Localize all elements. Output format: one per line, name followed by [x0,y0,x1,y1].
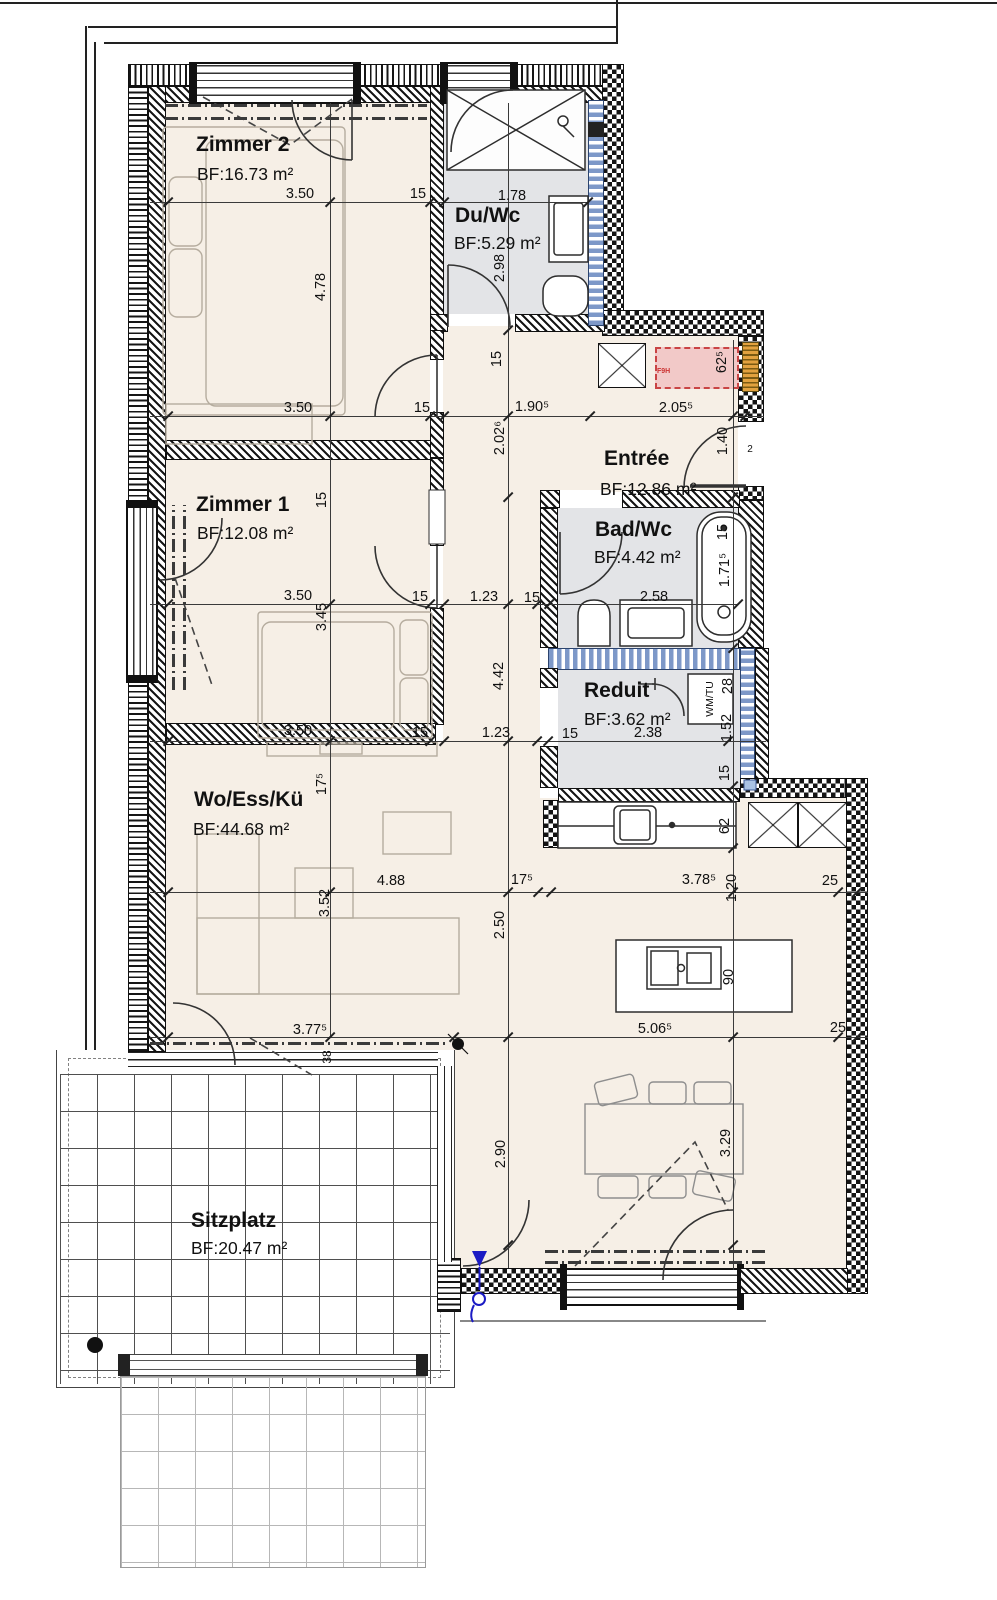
room-area-zimmer1: BF:12.08 m² [197,523,293,544]
dimension-label: 2.02⁶ [493,421,508,455]
toilet-icon [578,600,610,646]
dimension-line [508,103,509,1268]
curtain-line [165,104,427,107]
room-label-zimmer2: Zimmer 2 [196,133,289,157]
dimension-label: 15 [412,590,428,605]
dimension-label: 1.78 [498,189,526,204]
side-table-icon [383,812,451,854]
wardrobe-line [172,505,175,690]
washer-tag: WM/TU [705,681,716,717]
dimension-label: 2.38 [634,726,662,741]
dimension-label: 1.90⁵ [515,400,549,415]
door-arc [173,1003,235,1065]
floor-plan: Zimmer 2 BF:16.73 m² Du/Wc BF:5.29 m² En… [0,0,997,1600]
room-area-entree: BF:12.86 m² [600,479,696,500]
door-number-tag: 2 [747,445,753,455]
dimension-label: 62 [718,818,733,834]
room-area-zimmer2: BF:16.73 m² [197,164,293,185]
dimension-label: 17⁵ [511,873,533,888]
dimension-label: 15 [414,401,430,416]
dimension-label: 17⁵ [315,773,330,795]
dimension-label: 1.52 [720,714,735,742]
dimension-label: 25 [822,874,838,889]
dimension-label: 15 [524,591,540,606]
vanity-icon [620,600,692,646]
kitchen-island-icon [616,940,792,1012]
door-arc [663,1210,733,1280]
dimension-label: 3.50 [284,589,312,604]
room-area-duwc: BF:5.29 m² [454,233,541,254]
door-arcs [160,90,746,1280]
toilet-icon [543,276,588,316]
vent-marker [744,780,756,790]
room-label-sitzplatz: Sitzplatz [191,1209,276,1233]
dimension-label: 5.06⁵ [638,1022,672,1037]
room-area-wohnen: BF:44.68 m² [193,819,289,840]
curtain-line [165,117,427,120]
dimension-label: 3.52 [318,889,333,917]
dimension-label: 3.78⁵ [682,873,716,888]
dimension-label: 4.88 [377,874,405,889]
lintel-line [150,1042,445,1045]
dimension-label: 3.50 [284,401,312,416]
wall-recess [429,490,445,544]
dimension-label: 28 [721,678,736,694]
room-area-badwc: BF:4.42 m² [594,547,681,568]
dimension-label: 15 [490,351,505,367]
dimension-label: 3.50 [286,187,314,202]
room-label-entree: Entrée [604,447,669,471]
dimension-label: 15 [718,765,733,781]
room-label-zimmer1: Zimmer 1 [196,493,289,517]
dimension-label: 15 [412,726,428,741]
dimension-label: 38 [321,1050,333,1063]
dimension-label: 2.58 [640,590,668,605]
dimension-line [150,741,766,742]
symbols [87,780,756,1353]
dimension-label: 1.40 [716,427,731,455]
dimension-label: 3.45 [315,603,330,631]
dimension-label: 2.05⁵ [659,401,693,416]
room-label-badwc: Bad/Wc [595,518,672,542]
dimension-label: 15 [410,187,426,202]
dimension-label: 3.50 [284,724,312,739]
dimension-label: 1.20 [725,874,740,902]
post-dot [87,1337,103,1353]
sofa-icon [197,834,259,994]
dimension-label: 3.29 [719,1129,734,1157]
room-label-duwc: Du/Wc [455,204,520,228]
furniture-icons [163,127,459,994]
dimension-label: 4.78 [314,273,329,301]
wardrobe-line [183,505,186,690]
door-arc [463,1200,529,1266]
dimension-label: 1.71⁵ [718,553,733,587]
dimension-line [150,416,764,417]
dimension-label: 1.23 [482,726,510,741]
room-label-reduit: Reduit [584,679,649,703]
dimension-label: 15 [562,727,578,742]
dimension-label: 3.77⁵ [293,1023,327,1038]
dimension-label: 1.23 [470,590,498,605]
dimension-label: 2.98 [493,254,508,282]
dimension-label: 90 [722,969,737,985]
room-label-wohnen: Wo/Ess/Kü [194,788,303,812]
cabinet-x-icon [798,802,847,848]
dimension-label: 2.90 [494,1140,509,1168]
dimension-label: 2.50 [493,911,508,939]
dimension-label: 62⁵ [715,351,730,373]
cabinet-x-icon [748,802,798,848]
dimension-label: 15 [315,492,330,508]
fire-marker-tag: F9H [657,368,670,375]
dimension-label: 15 [716,524,731,540]
dimension-label: 4.42 [492,662,507,690]
dimension-label: 25 [830,1021,846,1036]
room-area-sitzplatz: BF:20.47 m² [191,1238,287,1259]
